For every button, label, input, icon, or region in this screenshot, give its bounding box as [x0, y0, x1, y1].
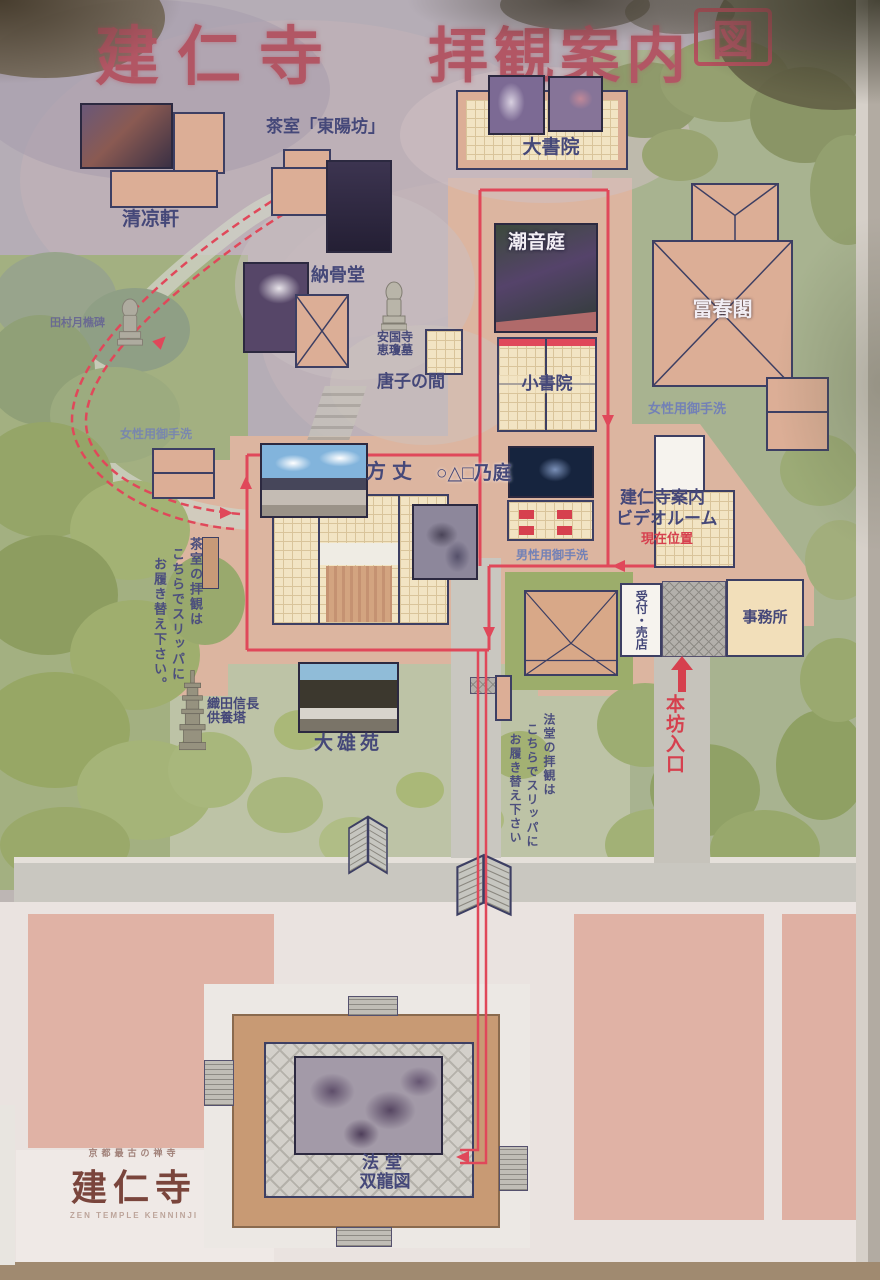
temple-map-board: 建仁寺 拝観案内 図 清凉軒 茶室「東陽坊」 納骨堂 安国寺 恵瓊墓 唐子の間 …	[0, 0, 880, 1280]
hatto-route-line	[0, 0, 880, 1280]
